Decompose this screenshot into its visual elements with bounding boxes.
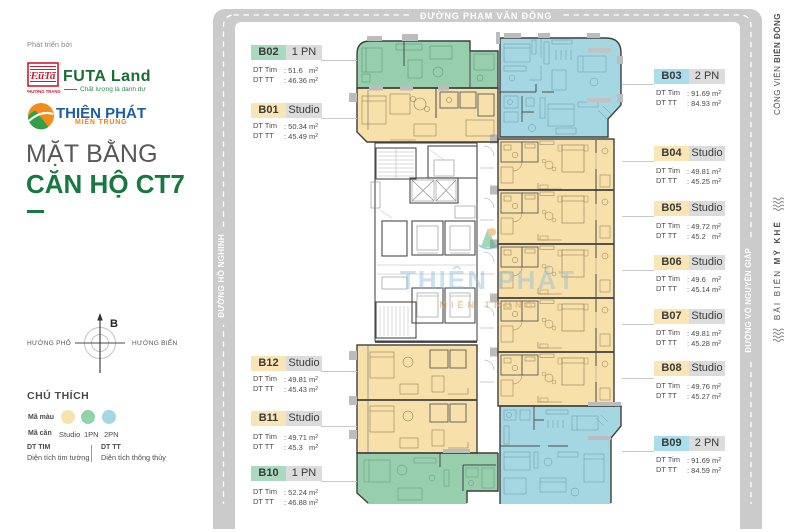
svg-text:THIÊN PHÁT: THIÊN PHÁT <box>400 265 576 295</box>
svg-text:®: ® <box>60 63 62 67</box>
svg-text:PHƯƠNG TRANG: PHƯƠNG TRANG <box>27 89 61 94</box>
svg-text:B: B <box>110 318 118 330</box>
svg-text:FuTa: FuTa <box>30 70 56 82</box>
svg-text:MIỀN TRUNG: MIỀN TRUNG <box>440 300 537 310</box>
